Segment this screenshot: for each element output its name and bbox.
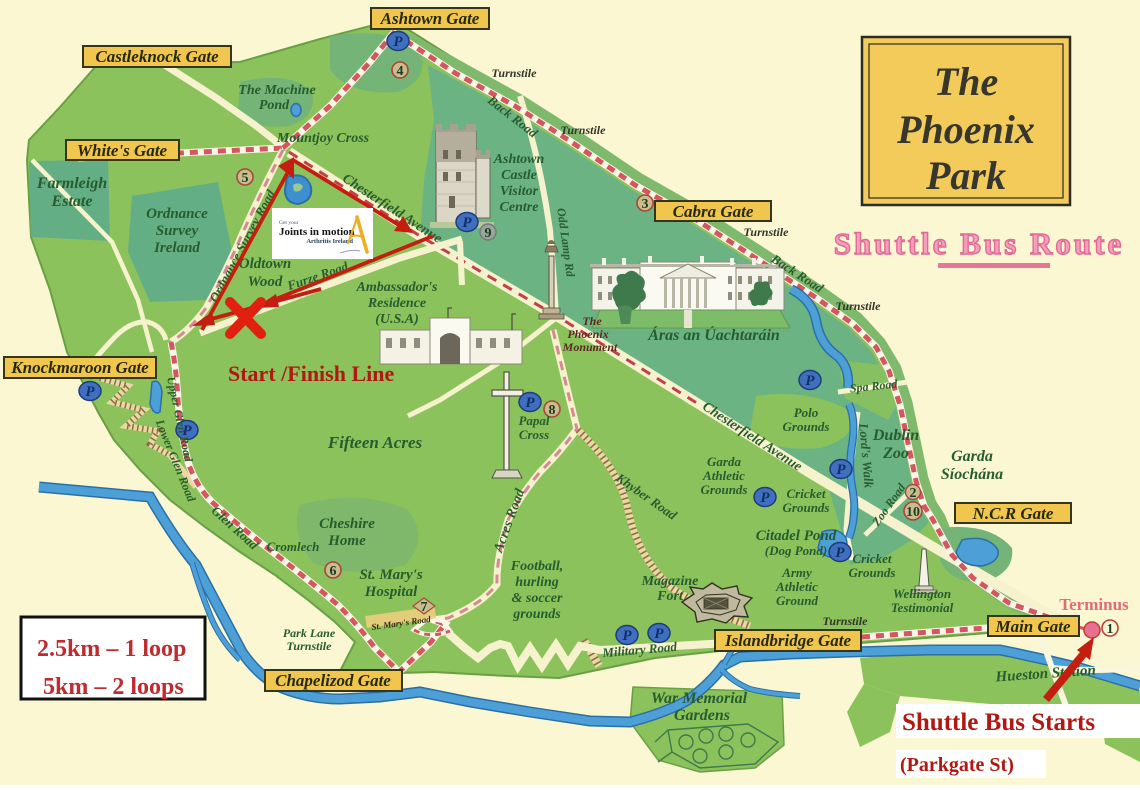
svg-text:Visitor: Visitor (500, 184, 539, 199)
svg-text:War Memorial: War Memorial (651, 690, 748, 707)
svg-text:St. Mary's: St. Mary's (359, 567, 423, 583)
svg-text:Chapelizod Gate: Chapelizod Gate (275, 671, 391, 690)
svg-text:The: The (582, 314, 602, 328)
svg-text:P: P (462, 215, 472, 231)
svg-text:Shuttle Bus Starts: Shuttle Bus Starts (902, 709, 1095, 736)
svg-text:Castleknock Gate: Castleknock Gate (95, 47, 219, 66)
svg-text:Start /Finish Line: Start /Finish Line (228, 361, 394, 386)
svg-text:Magazine: Magazine (641, 574, 699, 589)
svg-text:Farmleigh: Farmleigh (36, 175, 107, 192)
svg-text:The Machine: The Machine (238, 83, 315, 98)
svg-text:Turnstile: Turnstile (744, 225, 790, 239)
svg-text:P: P (760, 490, 770, 506)
svg-text:Phoenix: Phoenix (896, 107, 1035, 152)
svg-text:Dublin: Dublin (872, 427, 919, 444)
svg-text:Cromlech: Cromlech (267, 539, 320, 554)
svg-text:Cricket: Cricket (787, 486, 826, 501)
svg-text:Grounds: Grounds (783, 500, 830, 515)
svg-text:& soccer: & soccer (512, 591, 563, 606)
svg-text:1: 1 (1107, 622, 1114, 637)
svg-text:5: 5 (242, 171, 249, 186)
svg-text:Zoo: Zoo (882, 445, 909, 462)
svg-text:Main Gate: Main Gate (994, 617, 1071, 636)
svg-text:Survey: Survey (156, 223, 199, 239)
svg-text:Wellington: Wellington (893, 586, 951, 601)
svg-text:Ordnance: Ordnance (146, 206, 208, 222)
svg-text:Papal: Papal (518, 413, 549, 428)
svg-text:P: P (836, 462, 846, 478)
svg-text:Park Lane: Park Lane (283, 626, 336, 640)
svg-text:Phoenix: Phoenix (567, 327, 608, 341)
svg-text:Cabra Gate: Cabra Gate (673, 202, 754, 221)
svg-text:Fifteen Acres: Fifteen Acres (327, 433, 423, 452)
svg-text:Polo: Polo (794, 405, 819, 420)
svg-text:Park: Park (925, 153, 1006, 198)
svg-text:4: 4 (397, 64, 404, 79)
svg-text:hurling: hurling (515, 575, 559, 590)
svg-text:Athletic: Athletic (775, 579, 818, 594)
svg-text:Turnstile: Turnstile (823, 614, 869, 628)
svg-text:Fort: Fort (656, 589, 684, 604)
svg-text:P: P (835, 545, 845, 561)
svg-text:Citadel Pond: Citadel Pond (756, 528, 837, 544)
svg-text:Grounds: Grounds (849, 565, 896, 580)
svg-text:Knockmaroon Gate: Knockmaroon Gate (10, 358, 149, 377)
svg-text:2.5km – 1 loop: 2.5km – 1 loop (37, 636, 186, 662)
svg-text:Cricket: Cricket (853, 551, 892, 566)
svg-text:Athletic: Athletic (702, 468, 745, 483)
svg-text:P: P (525, 395, 535, 411)
svg-text:Ashtown: Ashtown (493, 152, 545, 167)
svg-text:Ashtown Gate: Ashtown Gate (380, 9, 480, 28)
svg-text:Cheshire: Cheshire (319, 516, 375, 532)
svg-text:Residence: Residence (367, 296, 426, 311)
svg-text:Arthritis Ireland: Arthritis Ireland (306, 238, 353, 245)
svg-text:Shuttle Bus Route: Shuttle Bus Route (834, 226, 1124, 261)
svg-text:Wood: Wood (248, 274, 283, 290)
svg-text:Cross: Cross (519, 427, 549, 442)
svg-text:Castle: Castle (501, 168, 537, 183)
svg-text:Ambassador's: Ambassador's (356, 280, 438, 295)
svg-text:Grounds: Grounds (701, 482, 748, 497)
svg-text:5km – 2 loops: 5km – 2 loops (43, 674, 184, 700)
svg-text:Mountjoy Cross: Mountjoy Cross (276, 131, 370, 146)
svg-text:N.C.R Gate: N.C.R Gate (972, 504, 1054, 523)
svg-text:Pond: Pond (259, 98, 290, 113)
svg-text:Áras an Úachtaráin: Áras an Úachtaráin (647, 325, 780, 344)
svg-text:Turnstile: Turnstile (836, 299, 882, 313)
svg-text:Islandbridge Gate: Islandbridge Gate (724, 631, 852, 650)
svg-text:7: 7 (421, 600, 428, 615)
svg-text:Grounds: Grounds (783, 419, 830, 434)
svg-text:6: 6 (330, 564, 337, 579)
svg-text:Gardens: Gardens (674, 707, 730, 724)
svg-text:Football,: Football, (510, 559, 564, 574)
svg-text:(U.S.A): (U.S.A) (375, 312, 419, 327)
svg-text:Garda: Garda (951, 448, 993, 465)
svg-text:Army: Army (781, 565, 812, 580)
svg-text:2: 2 (910, 486, 917, 501)
svg-text:Terminus: Terminus (1059, 595, 1129, 614)
svg-text:Hospital: Hospital (364, 584, 418, 600)
svg-text:(Parkgate St): (Parkgate St) (900, 754, 1014, 776)
svg-text:Joints in motion: Joints in motion (279, 226, 355, 238)
svg-text:Garda: Garda (707, 454, 741, 469)
svg-text:8: 8 (549, 403, 556, 418)
svg-text:P: P (393, 34, 403, 50)
svg-text:Centre: Centre (500, 200, 539, 215)
svg-text:Monument: Monument (562, 340, 618, 354)
svg-text:Testimonial: Testimonial (891, 600, 954, 615)
svg-text:Turnstile: Turnstile (561, 123, 607, 137)
svg-text:The: The (934, 59, 998, 104)
svg-text:9: 9 (485, 226, 492, 241)
svg-text:(Dog Pond): (Dog Pond) (765, 543, 827, 558)
svg-text:grounds: grounds (512, 607, 561, 622)
svg-text:Ireland: Ireland (153, 240, 200, 256)
svg-text:P: P (805, 373, 815, 389)
svg-text:P: P (85, 384, 95, 400)
svg-text:10: 10 (906, 505, 920, 520)
svg-text:Turnstile: Turnstile (492, 66, 538, 80)
svg-text:P: P (622, 628, 632, 644)
svg-text:White's Gate: White's Gate (77, 141, 168, 160)
svg-text:Estate: Estate (51, 193, 93, 210)
svg-text:Turnstile: Turnstile (287, 639, 333, 653)
svg-text:Síochána: Síochána (941, 466, 1003, 483)
svg-text:Ground: Ground (776, 593, 818, 608)
svg-text:Home: Home (327, 533, 366, 549)
svg-text:3: 3 (642, 197, 649, 212)
